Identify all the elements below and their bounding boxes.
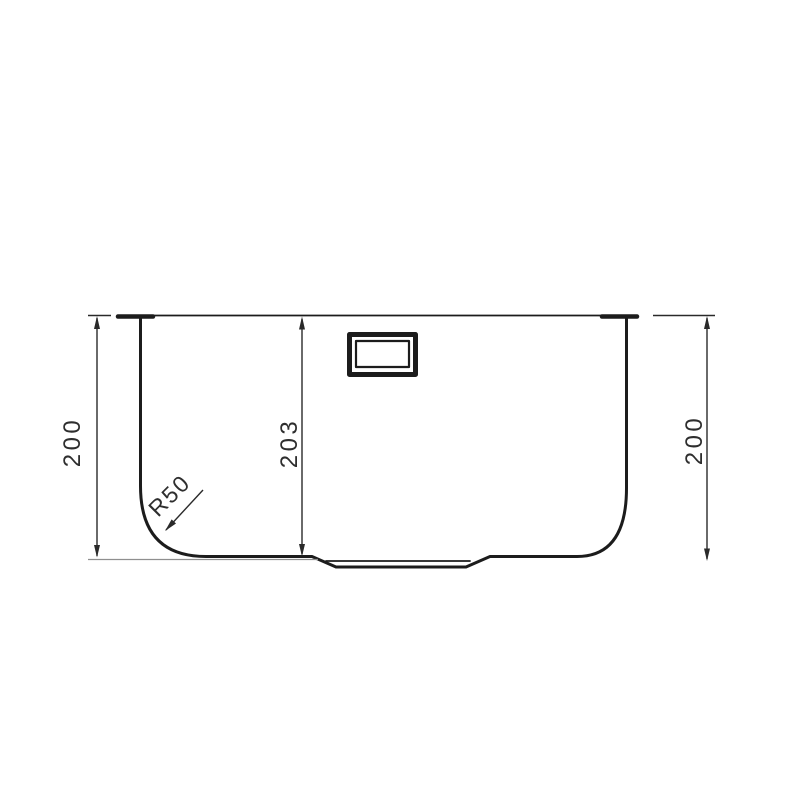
bowl-depth-label: 203	[276, 418, 303, 469]
center-dim-arrow-up	[299, 317, 305, 330]
sink-outline-group	[118, 316, 637, 568]
dimension-arrowheads-group	[94, 316, 710, 561]
corner-radius-label: R50	[143, 469, 195, 521]
right-height-label: 200	[681, 415, 708, 466]
center-dim-arrow-down	[299, 544, 305, 557]
left-dim-arrow-up	[94, 316, 100, 329]
left-height-label: 200	[59, 417, 86, 468]
drawing-canvas: 200 203 200 R50	[0, 0, 800, 800]
right-dim-arrow-up	[704, 316, 710, 329]
right-dim-arrow-down	[704, 549, 710, 562]
left-dim-arrow-down	[94, 545, 100, 558]
sink-section-drawing: 200 203 200 R50	[0, 0, 800, 800]
sink-bowl-profile	[141, 318, 627, 567]
overflow-opening-inner	[356, 341, 409, 367]
